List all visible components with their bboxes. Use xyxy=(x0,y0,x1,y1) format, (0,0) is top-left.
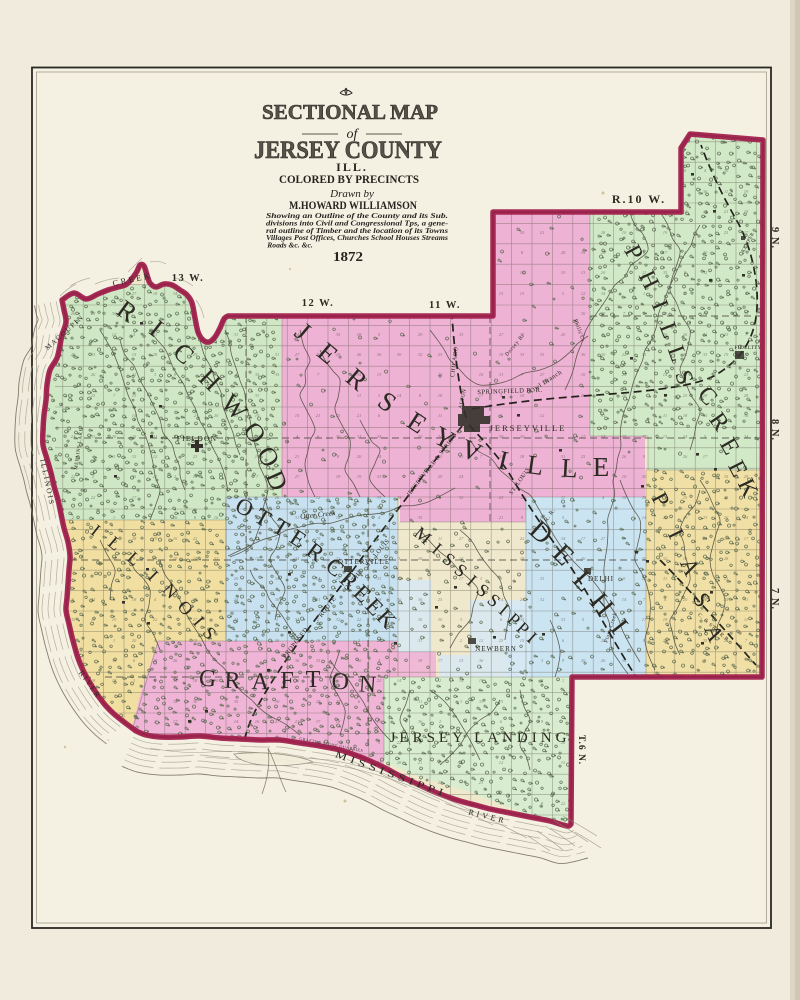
svg-text:15: 15 xyxy=(193,474,198,479)
svg-text:15: 15 xyxy=(622,434,627,439)
svg-text:25: 25 xyxy=(438,597,443,602)
svg-text:36: 36 xyxy=(377,352,382,357)
svg-text:24: 24 xyxy=(459,474,464,479)
svg-text:32: 32 xyxy=(703,270,708,275)
svg-text:18: 18 xyxy=(520,556,525,561)
svg-text:20: 20 xyxy=(357,454,362,459)
svg-text:18: 18 xyxy=(132,597,137,602)
svg-text:14: 14 xyxy=(132,413,137,418)
svg-text:12: 12 xyxy=(479,638,484,643)
svg-text:16: 16 xyxy=(479,372,484,377)
svg-text:35: 35 xyxy=(255,372,260,377)
svg-text:14: 14 xyxy=(622,597,627,602)
svg-text:11: 11 xyxy=(663,413,667,418)
svg-text:25: 25 xyxy=(724,230,729,235)
svg-text:24: 24 xyxy=(622,372,627,377)
svg-text:10: 10 xyxy=(561,270,566,275)
svg-text:33: 33 xyxy=(316,658,321,663)
svg-text:28: 28 xyxy=(397,495,402,500)
svg-text:29: 29 xyxy=(418,332,423,337)
svg-text:9 N.: 9 N. xyxy=(769,227,780,249)
svg-text:32: 32 xyxy=(295,678,300,683)
svg-text:33: 33 xyxy=(663,311,668,316)
svg-text:19: 19 xyxy=(418,576,423,581)
svg-text:15: 15 xyxy=(459,658,464,663)
svg-text:18: 18 xyxy=(418,658,423,663)
svg-text:NEWBERN: NEWBERN xyxy=(475,645,517,653)
svg-text:11: 11 xyxy=(91,434,95,439)
svg-text:24: 24 xyxy=(520,597,525,602)
svg-text:14: 14 xyxy=(153,556,158,561)
svg-text:14: 14 xyxy=(683,434,688,439)
svg-text:T: T xyxy=(306,667,321,693)
svg-text:13: 13 xyxy=(499,291,504,296)
svg-text:26: 26 xyxy=(622,454,627,459)
svg-text:N: N xyxy=(358,671,377,698)
svg-text:31: 31 xyxy=(295,515,300,520)
svg-text:28: 28 xyxy=(132,536,137,541)
svg-text:15: 15 xyxy=(397,576,402,581)
svg-text:18: 18 xyxy=(744,209,749,214)
svg-text:12: 12 xyxy=(112,332,117,337)
svg-text:17: 17 xyxy=(173,719,178,724)
svg-text:14: 14 xyxy=(377,454,382,459)
svg-text:COLORED BY PRECINCTS: COLORED BY PRECINCTS xyxy=(279,174,419,186)
svg-text:34: 34 xyxy=(173,291,178,296)
svg-text:JERSEYVILLE: JERSEYVILLE xyxy=(490,423,567,433)
svg-text:23: 23 xyxy=(91,597,96,602)
svg-text:36: 36 xyxy=(703,189,708,194)
svg-text:34: 34 xyxy=(459,678,464,683)
svg-text:FIDELITY: FIDELITY xyxy=(734,345,761,351)
svg-text:19: 19 xyxy=(336,474,341,479)
svg-text:23: 23 xyxy=(193,454,198,459)
svg-text:31: 31 xyxy=(357,434,362,439)
svg-text:30: 30 xyxy=(438,617,443,622)
svg-text:22: 22 xyxy=(71,474,76,479)
svg-text:18: 18 xyxy=(499,352,504,357)
svg-text:10: 10 xyxy=(520,270,525,275)
svg-text:14: 14 xyxy=(214,597,219,602)
svg-text:36: 36 xyxy=(295,658,300,663)
svg-text:23: 23 xyxy=(91,393,96,398)
svg-text:34: 34 xyxy=(622,658,627,663)
svg-text:26: 26 xyxy=(601,250,606,255)
svg-text:26: 26 xyxy=(275,638,280,643)
svg-text:22: 22 xyxy=(336,699,341,704)
svg-text:17: 17 xyxy=(438,658,443,663)
svg-text:18: 18 xyxy=(336,719,341,724)
svg-text:10: 10 xyxy=(622,474,627,479)
svg-text:10: 10 xyxy=(173,556,178,561)
svg-text:26: 26 xyxy=(663,515,668,520)
svg-text:19: 19 xyxy=(357,474,362,479)
svg-text:28: 28 xyxy=(724,556,729,561)
svg-text:26: 26 xyxy=(71,311,76,316)
svg-text:33: 33 xyxy=(377,495,382,500)
svg-text:11: 11 xyxy=(683,291,687,296)
svg-text:26: 26 xyxy=(91,372,96,377)
svg-text:28: 28 xyxy=(397,760,402,765)
svg-text:11: 11 xyxy=(744,617,748,622)
svg-text:23: 23 xyxy=(132,434,137,439)
svg-text:23: 23 xyxy=(724,332,729,337)
svg-text:23: 23 xyxy=(663,638,668,643)
svg-text:34: 34 xyxy=(601,291,606,296)
svg-text:30: 30 xyxy=(581,352,586,357)
svg-text:E: E xyxy=(593,452,610,482)
svg-text:15: 15 xyxy=(703,311,708,316)
svg-text:14: 14 xyxy=(703,209,708,214)
svg-text:26: 26 xyxy=(683,332,688,337)
svg-text:15: 15 xyxy=(336,413,341,418)
svg-text:14: 14 xyxy=(193,556,198,561)
svg-text:29: 29 xyxy=(71,352,76,357)
svg-text:36: 36 xyxy=(744,413,749,418)
svg-text:35: 35 xyxy=(336,332,341,337)
svg-text:10: 10 xyxy=(520,230,525,235)
svg-text:34: 34 xyxy=(744,434,749,439)
svg-text:11: 11 xyxy=(744,352,748,357)
svg-text:16: 16 xyxy=(173,536,178,541)
svg-text:34: 34 xyxy=(275,576,280,581)
svg-text:32: 32 xyxy=(418,352,423,357)
svg-text:26: 26 xyxy=(724,515,729,520)
svg-text:14: 14 xyxy=(234,719,239,724)
svg-text:13: 13 xyxy=(132,393,137,398)
svg-text:32: 32 xyxy=(459,495,464,500)
svg-text:17: 17 xyxy=(744,536,749,541)
svg-text:21: 21 xyxy=(71,434,76,439)
svg-text:36: 36 xyxy=(275,597,280,602)
svg-text:35: 35 xyxy=(663,270,668,275)
svg-text:26: 26 xyxy=(581,393,586,398)
svg-text:19: 19 xyxy=(479,678,484,683)
svg-text:15: 15 xyxy=(683,495,688,500)
svg-text:17: 17 xyxy=(581,434,586,439)
svg-text:12: 12 xyxy=(581,291,586,296)
svg-text:A: A xyxy=(251,669,270,696)
svg-text:27: 27 xyxy=(275,719,280,724)
svg-text:30: 30 xyxy=(418,617,423,622)
svg-text:32: 32 xyxy=(173,699,178,704)
svg-text:15: 15 xyxy=(193,638,198,643)
svg-text:10: 10 xyxy=(622,413,627,418)
svg-text:8 N.: 8 N. xyxy=(769,419,780,441)
svg-text:32: 32 xyxy=(234,495,239,500)
svg-text:28: 28 xyxy=(561,250,566,255)
svg-text:10: 10 xyxy=(622,495,627,500)
svg-text:33: 33 xyxy=(479,699,484,704)
svg-text:1: 1 xyxy=(562,678,564,683)
svg-text:17: 17 xyxy=(703,454,708,459)
svg-text:18: 18 xyxy=(153,291,158,296)
svg-text:27: 27 xyxy=(601,536,606,541)
svg-text:23: 23 xyxy=(479,780,484,785)
svg-text:17: 17 xyxy=(438,760,443,765)
svg-text:33: 33 xyxy=(377,474,382,479)
svg-text:15: 15 xyxy=(132,352,137,357)
svg-text:18: 18 xyxy=(193,678,198,683)
svg-text:34: 34 xyxy=(295,556,300,561)
svg-text:28: 28 xyxy=(601,230,606,235)
svg-text:36: 36 xyxy=(479,658,484,663)
svg-text:35: 35 xyxy=(418,515,423,520)
svg-text:35: 35 xyxy=(71,617,76,622)
svg-text:F: F xyxy=(280,668,293,694)
svg-text:1: 1 xyxy=(480,576,482,581)
svg-text:25: 25 xyxy=(316,699,321,704)
svg-text:16: 16 xyxy=(214,515,219,520)
svg-text:25: 25 xyxy=(724,597,729,602)
svg-text:27: 27 xyxy=(540,372,545,377)
svg-text:26: 26 xyxy=(601,658,606,663)
svg-text:19: 19 xyxy=(153,536,158,541)
svg-text:32: 32 xyxy=(255,536,260,541)
svg-text:19: 19 xyxy=(724,352,729,357)
svg-text:20: 20 xyxy=(581,658,586,663)
svg-text:32: 32 xyxy=(336,617,341,622)
svg-text:26: 26 xyxy=(275,495,280,500)
svg-text:10: 10 xyxy=(377,719,382,724)
svg-text:17: 17 xyxy=(744,230,749,235)
svg-text:20: 20 xyxy=(438,372,443,377)
svg-text:33: 33 xyxy=(540,576,545,581)
svg-text:30: 30 xyxy=(601,352,606,357)
svg-text:26: 26 xyxy=(357,352,362,357)
svg-text:28: 28 xyxy=(642,495,647,500)
svg-text:31: 31 xyxy=(275,352,280,357)
svg-text:22: 22 xyxy=(153,617,158,622)
svg-text:25: 25 xyxy=(581,454,586,459)
svg-text:31: 31 xyxy=(744,597,749,602)
svg-text:30: 30 xyxy=(336,434,341,439)
svg-text:1: 1 xyxy=(113,638,115,643)
svg-text:28: 28 xyxy=(744,393,749,398)
svg-text:22: 22 xyxy=(377,678,382,683)
svg-text:33: 33 xyxy=(132,454,137,459)
svg-text:31: 31 xyxy=(418,699,423,704)
svg-text:33: 33 xyxy=(459,332,464,337)
svg-text:15: 15 xyxy=(295,413,300,418)
svg-text:35: 35 xyxy=(703,413,708,418)
svg-text:7 N.: 7 N. xyxy=(769,588,780,610)
svg-text:11: 11 xyxy=(561,495,565,500)
svg-text:35: 35 xyxy=(642,352,647,357)
svg-text:35: 35 xyxy=(642,434,647,439)
svg-text:32: 32 xyxy=(540,597,545,602)
svg-text:10: 10 xyxy=(581,372,586,377)
svg-text:28: 28 xyxy=(153,658,158,663)
svg-text:28: 28 xyxy=(153,352,158,357)
svg-text:17: 17 xyxy=(642,617,647,622)
svg-text:21: 21 xyxy=(724,495,729,500)
svg-text:11: 11 xyxy=(703,332,707,337)
svg-text:1: 1 xyxy=(113,413,115,418)
svg-text:21: 21 xyxy=(418,760,423,765)
svg-text:21: 21 xyxy=(316,413,321,418)
svg-text:30: 30 xyxy=(397,597,402,602)
svg-text:34: 34 xyxy=(173,678,178,683)
svg-text:T.6 N.: T.6 N. xyxy=(576,735,586,765)
svg-text:21: 21 xyxy=(357,413,362,418)
svg-text:23: 23 xyxy=(703,515,708,520)
svg-text:M.HOWARD WILLIAMSON: M.HOWARD WILLIAMSON xyxy=(289,198,417,212)
svg-text:12: 12 xyxy=(316,495,321,500)
svg-text:21: 21 xyxy=(295,719,300,724)
svg-text:20: 20 xyxy=(520,434,525,439)
svg-text:10: 10 xyxy=(622,230,627,235)
svg-text:22: 22 xyxy=(561,801,566,806)
svg-text:13: 13 xyxy=(663,434,668,439)
svg-text:13: 13 xyxy=(520,291,525,296)
svg-text:22: 22 xyxy=(357,617,362,622)
svg-text:18: 18 xyxy=(479,556,484,561)
svg-text:14: 14 xyxy=(703,536,708,541)
svg-text:20: 20 xyxy=(601,270,606,275)
svg-text:17: 17 xyxy=(663,250,668,255)
svg-text:30: 30 xyxy=(642,474,647,479)
svg-text:13: 13 xyxy=(377,372,382,377)
svg-text:36: 36 xyxy=(112,556,117,561)
svg-text:27: 27 xyxy=(438,780,443,785)
svg-text:O: O xyxy=(331,669,349,696)
svg-text:18: 18 xyxy=(357,332,362,337)
svg-text:24: 24 xyxy=(234,617,239,622)
svg-text:20: 20 xyxy=(561,332,566,337)
svg-text:27: 27 xyxy=(459,536,464,541)
svg-text:18: 18 xyxy=(520,454,525,459)
svg-text:35: 35 xyxy=(255,617,260,622)
svg-text:22: 22 xyxy=(622,352,627,357)
svg-text:12: 12 xyxy=(91,413,96,418)
svg-text:R.10 W.: R.10 W. xyxy=(612,192,666,206)
svg-text:29: 29 xyxy=(683,515,688,520)
svg-text:JERSEY LANDING: JERSEY LANDING xyxy=(390,730,571,746)
svg-text:DELHI: DELHI xyxy=(588,575,614,583)
svg-text:24: 24 xyxy=(234,597,239,602)
svg-text:33: 33 xyxy=(561,617,566,622)
svg-text:35: 35 xyxy=(234,699,239,704)
svg-text:21: 21 xyxy=(153,434,158,439)
svg-text:31: 31 xyxy=(295,617,300,622)
svg-text:22: 22 xyxy=(153,474,158,479)
svg-text:18: 18 xyxy=(438,393,443,398)
svg-text:21: 21 xyxy=(295,454,300,459)
svg-text:12: 12 xyxy=(499,760,504,765)
svg-text:33: 33 xyxy=(91,352,96,357)
svg-text:27: 27 xyxy=(295,474,300,479)
svg-text:22: 22 xyxy=(193,536,198,541)
svg-text:30: 30 xyxy=(275,699,280,704)
svg-text:18: 18 xyxy=(663,617,668,622)
svg-text:19: 19 xyxy=(744,189,749,194)
svg-text:21: 21 xyxy=(499,515,504,520)
svg-text:27: 27 xyxy=(295,352,300,357)
svg-text:14: 14 xyxy=(316,576,321,581)
svg-text:19: 19 xyxy=(663,230,668,235)
svg-text:33: 33 xyxy=(255,393,260,398)
svg-text:31: 31 xyxy=(234,454,239,459)
svg-text:17: 17 xyxy=(132,495,137,500)
svg-text:31: 31 xyxy=(316,597,321,602)
svg-text:35: 35 xyxy=(581,250,586,255)
svg-text:17: 17 xyxy=(581,536,586,541)
svg-text:22: 22 xyxy=(499,495,504,500)
svg-text:15: 15 xyxy=(561,760,566,765)
svg-text:21: 21 xyxy=(724,209,729,214)
svg-text:16: 16 xyxy=(581,556,586,561)
svg-text:28: 28 xyxy=(601,311,606,316)
svg-text:20: 20 xyxy=(622,393,627,398)
svg-text:30: 30 xyxy=(357,658,362,663)
svg-text:21: 21 xyxy=(540,230,545,235)
svg-text:13 W.: 13 W. xyxy=(172,273,205,284)
svg-text:30: 30 xyxy=(193,699,198,704)
svg-text:20: 20 xyxy=(683,597,688,602)
svg-text:1: 1 xyxy=(113,515,115,520)
svg-text:23: 23 xyxy=(744,372,749,377)
svg-text:18: 18 xyxy=(316,638,321,643)
svg-text:12: 12 xyxy=(153,454,158,459)
svg-text:35: 35 xyxy=(132,474,137,479)
svg-text:ILL.: ILL. xyxy=(336,160,368,174)
svg-text:11 W.: 11 W. xyxy=(429,300,461,311)
svg-text:35: 35 xyxy=(744,311,749,316)
svg-text:14: 14 xyxy=(642,515,647,520)
svg-text:L: L xyxy=(560,453,578,484)
svg-text:20: 20 xyxy=(112,434,117,439)
svg-text:27: 27 xyxy=(499,332,504,337)
svg-text:17: 17 xyxy=(316,719,321,724)
svg-text:36: 36 xyxy=(418,597,423,602)
svg-text:12 W.: 12 W. xyxy=(302,298,335,309)
svg-text:22: 22 xyxy=(91,495,96,500)
svg-text:14: 14 xyxy=(663,372,668,377)
svg-text:31: 31 xyxy=(499,372,504,377)
svg-text:11: 11 xyxy=(132,372,136,377)
svg-text:11: 11 xyxy=(724,576,728,581)
svg-text:31: 31 xyxy=(601,413,606,418)
svg-text:11: 11 xyxy=(91,617,95,622)
svg-text:18: 18 xyxy=(112,678,117,683)
svg-text:1872: 1872 xyxy=(333,249,363,264)
svg-text:31: 31 xyxy=(234,332,239,337)
svg-text:23: 23 xyxy=(438,352,443,357)
svg-text:14: 14 xyxy=(397,678,402,683)
svg-text:30: 30 xyxy=(499,434,504,439)
svg-text:33: 33 xyxy=(520,352,525,357)
svg-text:26: 26 xyxy=(418,556,423,561)
svg-text:10: 10 xyxy=(255,638,260,643)
svg-text:20: 20 xyxy=(132,638,137,643)
svg-text:11: 11 xyxy=(357,393,361,398)
svg-text:26: 26 xyxy=(173,515,178,520)
svg-text:13: 13 xyxy=(581,270,586,275)
svg-text:35: 35 xyxy=(112,658,117,663)
svg-text:17: 17 xyxy=(255,556,260,561)
svg-text:G: G xyxy=(198,665,218,692)
svg-text:14: 14 xyxy=(744,515,749,520)
svg-text:16: 16 xyxy=(336,515,341,520)
svg-text:35: 35 xyxy=(275,372,280,377)
svg-text:28: 28 xyxy=(91,311,96,316)
svg-text:Roads &c. &c.: Roads &c. &c. xyxy=(266,241,313,250)
svg-text:24: 24 xyxy=(377,434,382,439)
svg-text:10: 10 xyxy=(112,617,117,622)
svg-text:11: 11 xyxy=(724,189,728,194)
svg-text:SECTIONAL MAP: SECTIONAL MAP xyxy=(262,100,438,124)
